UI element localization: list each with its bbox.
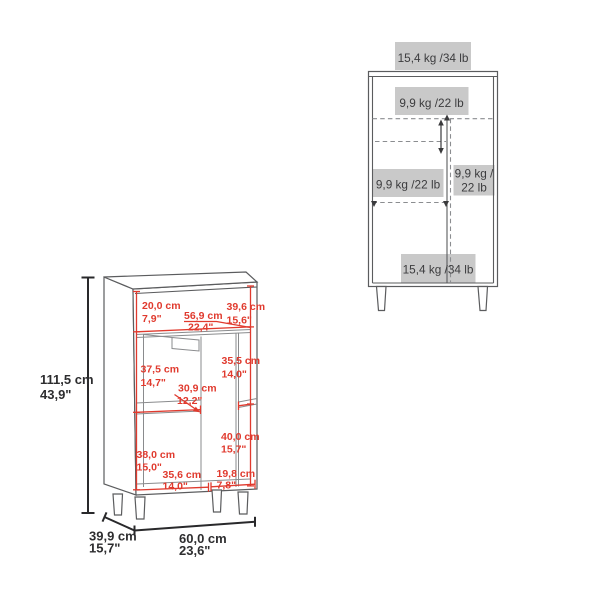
load-label-bottom: 15,4 kg /34 lb [403,263,474,277]
iso-front-left-leg [135,497,145,519]
dim-top-section-in: 7,9" [142,313,162,325]
dim-bottom-left-height-in: 15,0" [137,462,162,474]
front-view-diagram: 15,4 kg /34 lb 9,9 kg /22 lb 9,9 kg /22 … [369,42,498,311]
dim-interior-depth-in: 15,6" [227,315,252,327]
load-label-top: 15,4 kg /34 lb [398,51,469,65]
dim-bottom-left-width-in: 14,0" [163,481,188,493]
iso-back-right-leg [212,490,222,512]
dim-interior-width-in: 22,4" [188,322,213,334]
front-right-leg [478,287,488,311]
furniture-spec-sheet: 15,4 kg /34 lb 9,9 kg /22 lb 9,9 kg /22 … [0,0,600,600]
overall-width-in: 23,6" [179,543,210,558]
iso-front-right-leg [238,492,248,514]
spec-diagram-canvas: 15,4 kg /34 lb 9,9 kg /22 lb 9,9 kg /22 … [0,0,600,600]
load-label-right-line2: 22 lb [461,181,487,195]
dim-top-section-cm: 20,0 cm [142,300,181,312]
dim-bottom-right-height-in: 15,7" [221,444,246,456]
overall-depth-in: 15,7" [89,541,120,556]
load-label-upper: 9,9 kg /22 lb [399,96,464,110]
iso-back-left-leg [113,494,123,515]
width-dim-line [135,522,256,531]
dim-mid-left-in: 14,7" [141,377,166,389]
dim-bottom-right-width-in: 7,8" [217,480,237,492]
dim-bottom-left-width-cm: 35,6 cm [163,469,202,481]
dim-bottom-right-height-cm: 40,0 cm [221,431,260,443]
dim-mid-right-cm: 35,5 cm [222,355,261,367]
dim-center-width-cm: 30,9 cm [178,383,217,395]
overall-height-in: 43,9" [40,387,71,402]
dim-bottom-right-width-cm: 19,8 cm [217,468,256,480]
front-left-leg [377,287,387,311]
isometric-view-diagram: 20,0 cm 7,9" 56,9 cm 22,4" 39,6 cm 15,6"… [40,272,265,558]
dim-interior-depth-cm: 39,6 cm [227,301,266,313]
dim-center-width-in: 12,2" [177,395,202,407]
dim-bottom-left-height-cm: 38,0 cm [137,449,176,461]
dim-interior-width-cm: 56,9 cm [184,310,223,322]
load-label-right-line1: 9,9 kg / [455,167,494,181]
dim-mid-left-cm: 37,5 cm [141,364,180,376]
dim-mid-right-in: 14,0" [222,369,247,381]
iso-left-side-face [104,277,136,495]
overall-height-cm: 111,5 cm [40,372,94,387]
load-label-left: 9,9 kg /22 lb [376,178,441,192]
